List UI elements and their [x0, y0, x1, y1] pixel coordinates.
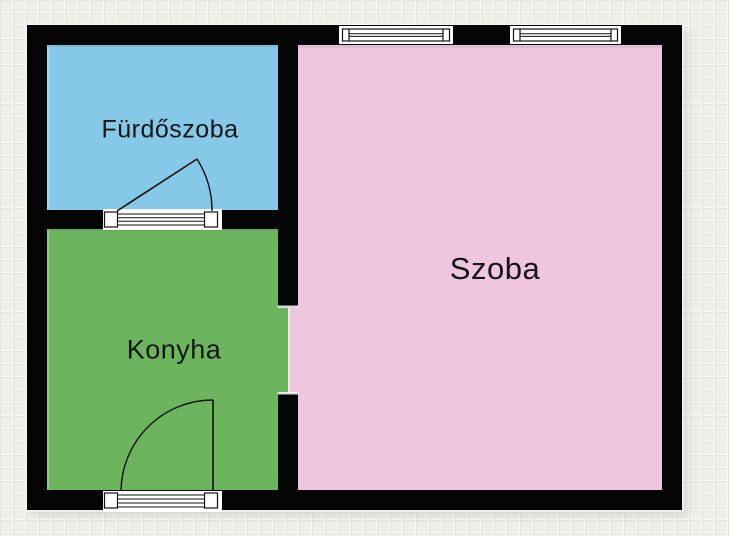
door-konyha-entry[interactable]: [103, 400, 222, 512]
room-label-furdoszoba: Fürdőszoba: [101, 116, 238, 145]
room-label-konyha: Konyha: [127, 335, 222, 366]
opening-konyha-szoba[interactable]: [278, 306, 299, 395]
door-swing-arc: [121, 400, 213, 491]
window-1[interactable]: [339, 26, 453, 44]
room-label-szoba: Szoba: [450, 251, 540, 287]
door-furdoszoba[interactable]: [103, 159, 222, 230]
window-2[interactable]: [510, 26, 621, 44]
fixtures-layer: [0, 0, 729, 536]
floor-plan-canvas: Fürdőszoba Konyha Szoba: [0, 0, 729, 536]
door-swing-arc: [197, 159, 212, 211]
door-leaf: [117, 159, 197, 211]
